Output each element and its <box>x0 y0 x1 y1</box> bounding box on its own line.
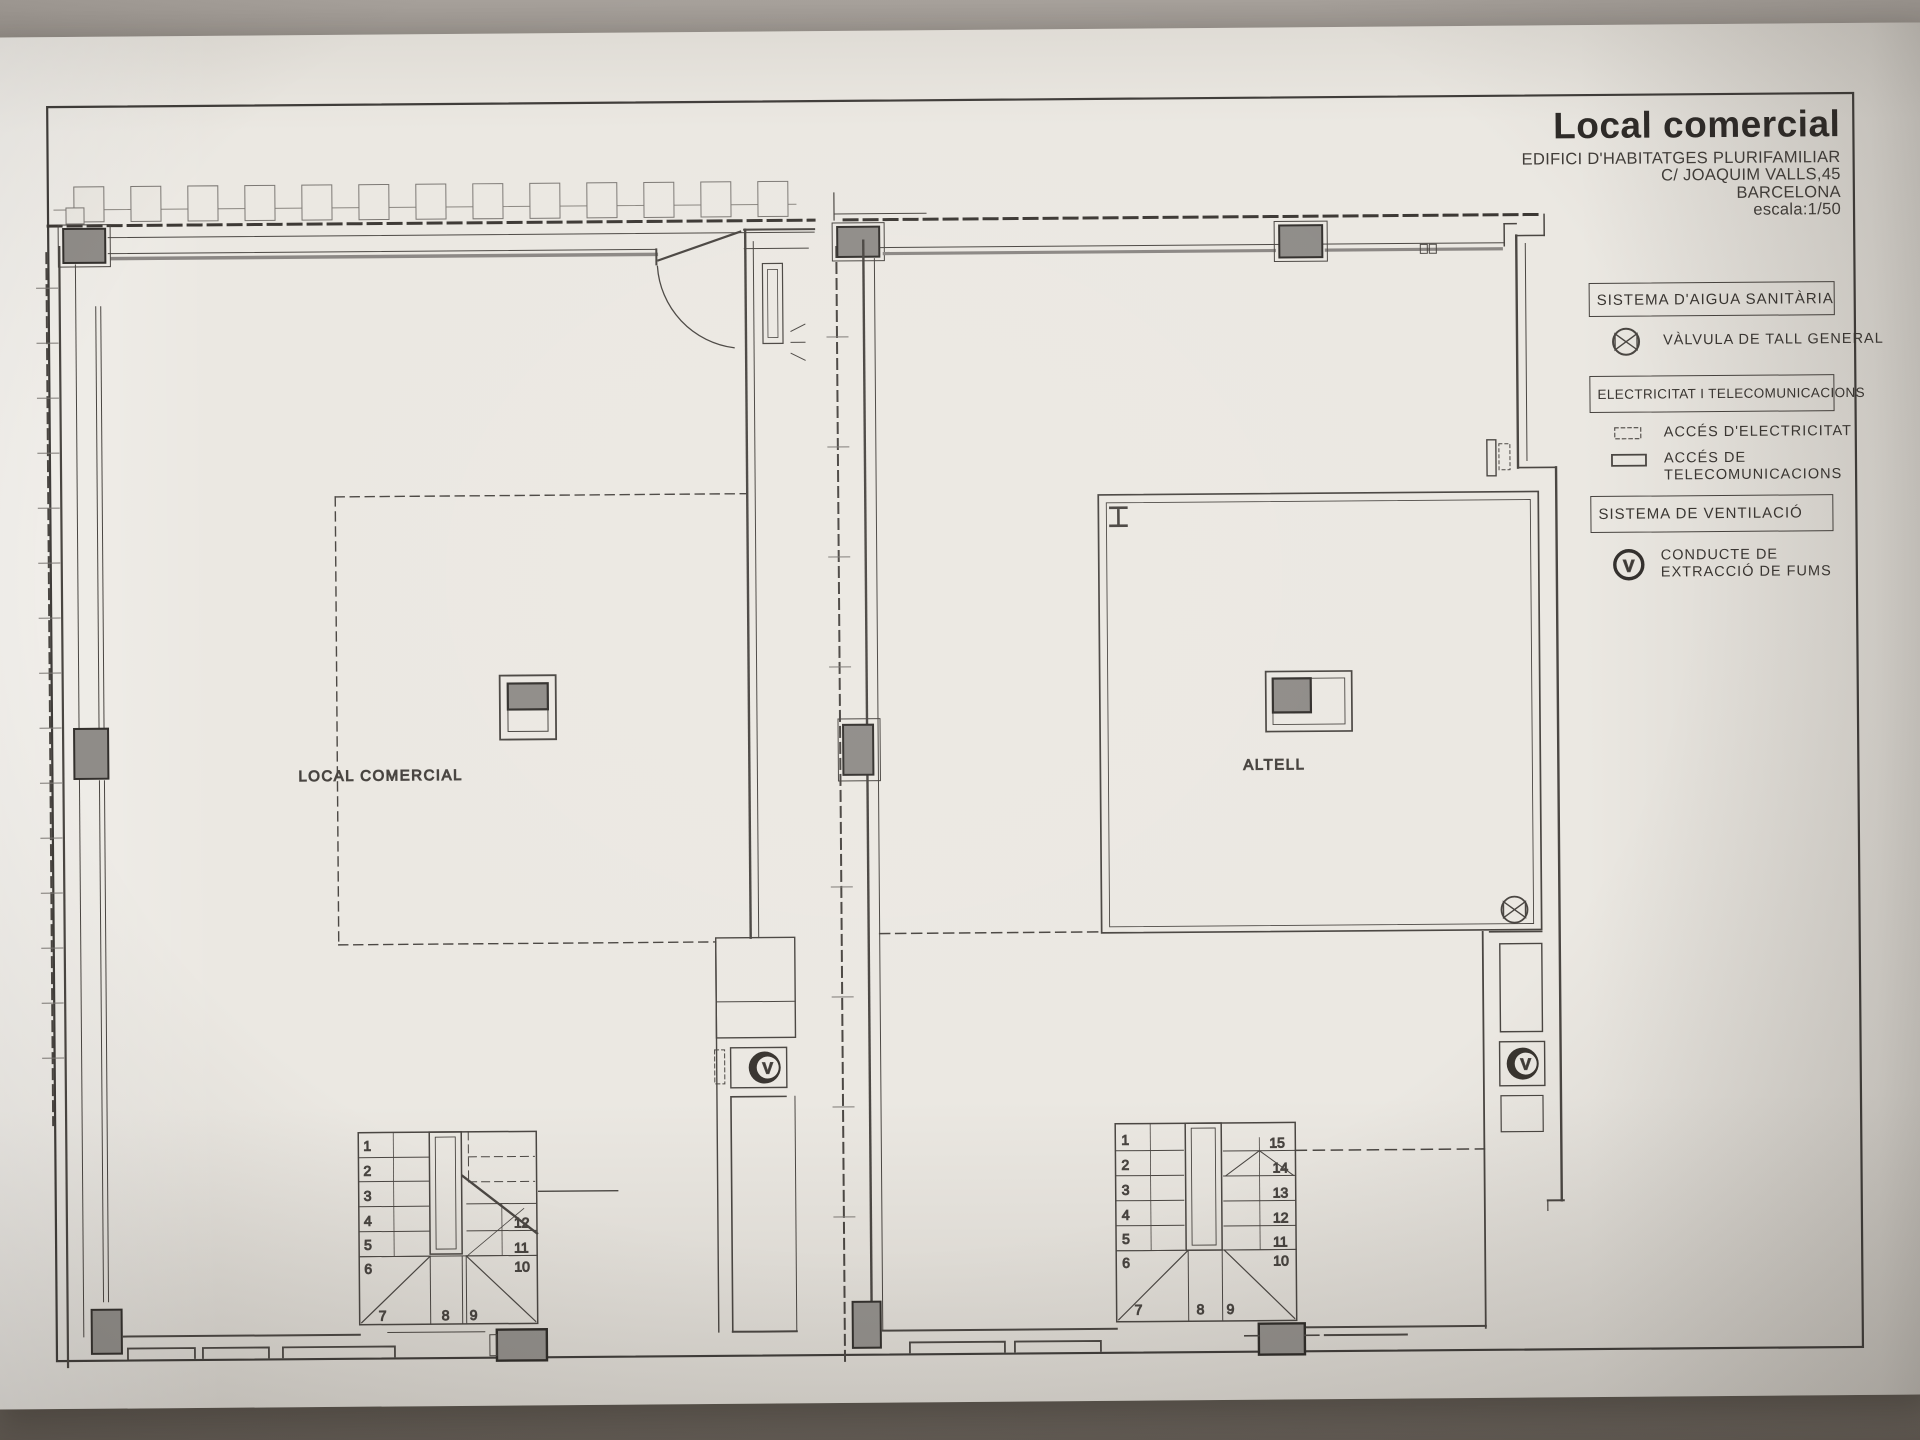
stair-number: 3 <box>1122 1182 1130 1198</box>
stair-number: 5 <box>1122 1231 1130 1247</box>
stair-number: 1 <box>1121 1132 1129 1148</box>
facade-modules <box>66 181 788 224</box>
right-plan: V <box>826 187 1565 1361</box>
stair-number: 4 <box>364 1213 372 1229</box>
stair-number: 7 <box>379 1308 387 1324</box>
electricity-access-icon <box>1615 428 1641 439</box>
stair-number: 7 <box>1135 1302 1143 1318</box>
page-title: Local comercial <box>1490 105 1840 147</box>
photo-of-floor-plan: V <box>0 0 1920 1440</box>
stair-number: 12 <box>514 1214 530 1230</box>
stair-numbers-left: 1 2 3 4 5 6 7 8 9 10 11 12 <box>363 1136 530 1323</box>
ventilation-icon: V <box>749 1051 781 1083</box>
right-plan-label: ALTELL <box>1243 756 1305 773</box>
stair-number: 8 <box>442 1307 450 1323</box>
stair-number: 14 <box>1272 1159 1288 1175</box>
stair-number: 2 <box>363 1163 371 1179</box>
entrance-door <box>656 232 741 349</box>
ventilation-icon: V <box>1507 1047 1539 1079</box>
valve-icon <box>1501 897 1527 923</box>
pillar <box>853 1302 881 1348</box>
stair-number: 4 <box>1122 1207 1130 1223</box>
stair-number: 2 <box>1121 1157 1129 1173</box>
title-block: Local comercial EDIFICI D'HABITATGES PLU… <box>1490 105 1841 222</box>
stair-number: 1 <box>363 1138 371 1154</box>
steel-column-icon <box>1110 508 1126 526</box>
shaft <box>1266 671 1352 732</box>
altell-room <box>1098 491 1541 932</box>
pillar <box>74 729 108 779</box>
pillar <box>837 227 879 257</box>
legend-item-smoke-extraction-label: CONDUCTE DE EXTRACCIÓ DE FUMS <box>1661 546 1873 581</box>
legend-section-electricity: ELECTRICITAT I TELECOMUNICACIONS <box>1589 374 1834 413</box>
pillar <box>1279 225 1322 257</box>
electricity-access-icon <box>1499 444 1510 470</box>
svg-text:V: V <box>1520 1057 1531 1074</box>
svg-text:V: V <box>762 1060 773 1077</box>
stair-number: 15 <box>1269 1134 1285 1150</box>
stair-number: 13 <box>1273 1184 1289 1200</box>
stair-number: 6 <box>1122 1255 1130 1271</box>
telecom-access-icon <box>1487 440 1496 476</box>
stair-number: 11 <box>514 1239 529 1255</box>
legend-item-electricity-label: ACCÉS D'ELECTRICITAT <box>1664 423 1852 441</box>
stair-number: 9 <box>1227 1301 1235 1317</box>
stair-number: 11 <box>1273 1233 1288 1249</box>
telecom-access-icon <box>1612 455 1646 466</box>
legend-symbols: V <box>1611 329 1647 579</box>
paper-sheet: V <box>0 0 1920 1440</box>
pillar <box>92 1310 122 1354</box>
pillar <box>1259 1323 1305 1354</box>
smoke-extraction-icon: V <box>1615 551 1643 579</box>
legend-item-telecom-label: ACCÉS DE TELECOMUNICACIONS <box>1664 449 1836 484</box>
stair-number: 3 <box>364 1188 372 1204</box>
stair-number: 12 <box>1273 1209 1289 1225</box>
pillar <box>63 229 105 263</box>
stair-number: 8 <box>1197 1301 1205 1317</box>
pillar <box>843 725 873 775</box>
legend-section-water: SISTEMA D'AIGUA SANITÀRIA <box>1589 281 1835 317</box>
legend-item-valve-label: VÀLVULA DE TALL GENERAL <box>1663 331 1884 349</box>
title-block-scale: escala:1/50 <box>1491 201 1841 221</box>
stair-number: 10 <box>1273 1252 1289 1268</box>
stair-right <box>1115 1121 1486 1356</box>
svg-text:V: V <box>1623 557 1635 576</box>
stair-number: 5 <box>364 1237 372 1253</box>
left-plan-label: LOCAL COMERCIAL <box>298 767 463 785</box>
valve-icon <box>1613 329 1639 355</box>
shaft <box>500 675 557 739</box>
mezzanine-outline <box>335 494 751 945</box>
stair-number: 6 <box>364 1261 372 1277</box>
legend-section-ventilation: SISTEMA DE VENTILACIÓ <box>1590 494 1833 533</box>
pillar <box>497 1329 547 1360</box>
stair-number: 10 <box>514 1258 530 1274</box>
stair-number: 9 <box>470 1307 478 1323</box>
